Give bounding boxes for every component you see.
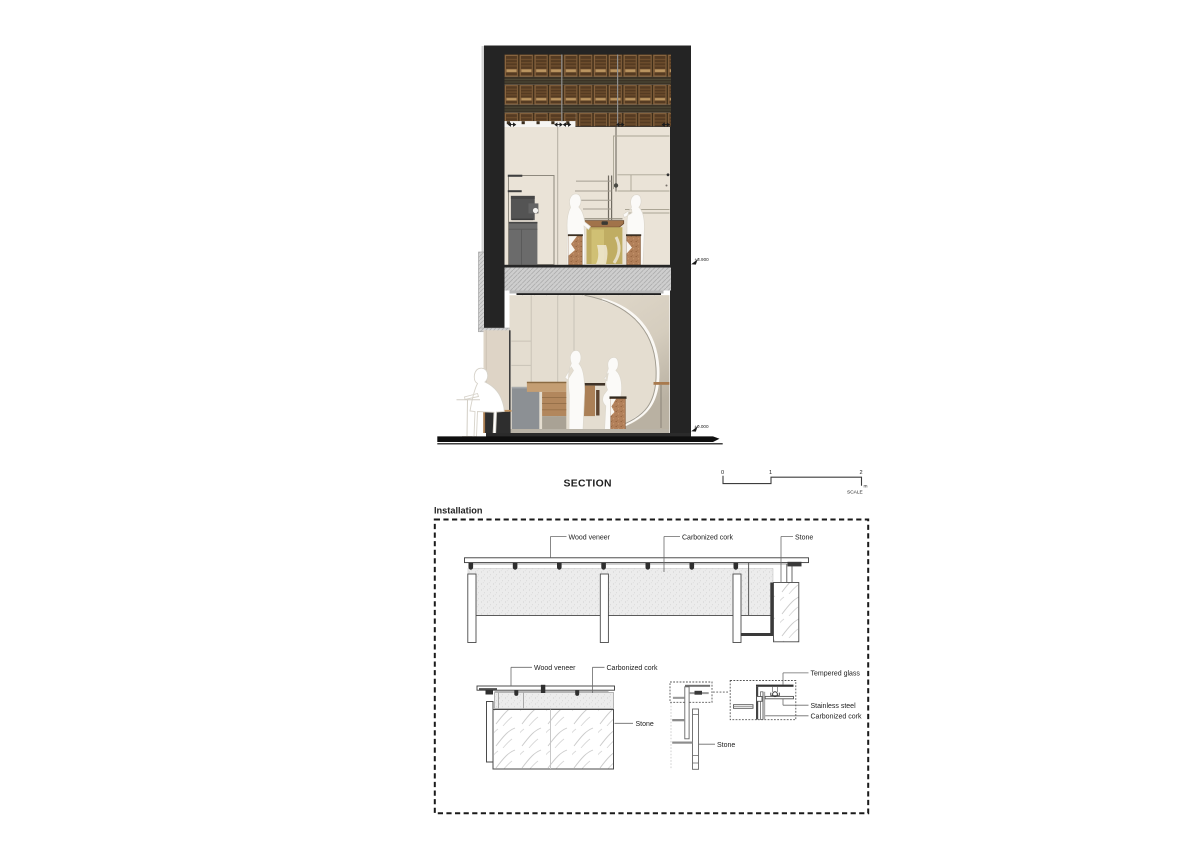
svg-text:m: m bbox=[864, 485, 868, 490]
svg-text:Tempered glass: Tempered glass bbox=[811, 671, 861, 678]
svg-text:+3.900: +3.900 bbox=[695, 257, 710, 262]
svg-text:0: 0 bbox=[721, 470, 724, 476]
svg-text:Carbonized cork: Carbonized cork bbox=[811, 714, 862, 721]
svg-text:Stone: Stone bbox=[717, 742, 735, 749]
svg-text:2: 2 bbox=[860, 470, 863, 476]
svg-text:Installation: Installation bbox=[434, 506, 483, 516]
svg-text:SECTION: SECTION bbox=[564, 479, 612, 490]
svg-text:Wood veneer: Wood veneer bbox=[569, 534, 611, 541]
svg-text:Wood veneer: Wood veneer bbox=[534, 665, 576, 672]
svg-text:Stone: Stone bbox=[636, 721, 654, 728]
svg-text:SCALE: SCALE bbox=[847, 490, 863, 496]
svg-text:±0.000: ±0.000 bbox=[695, 424, 709, 429]
svg-text:Stainless steel: Stainless steel bbox=[811, 703, 857, 710]
svg-text:1: 1 bbox=[769, 470, 772, 476]
svg-text:Carbonized cork: Carbonized cork bbox=[682, 534, 733, 541]
svg-text:Stone: Stone bbox=[795, 534, 813, 541]
svg-text:Carbonized cork: Carbonized cork bbox=[607, 665, 658, 672]
